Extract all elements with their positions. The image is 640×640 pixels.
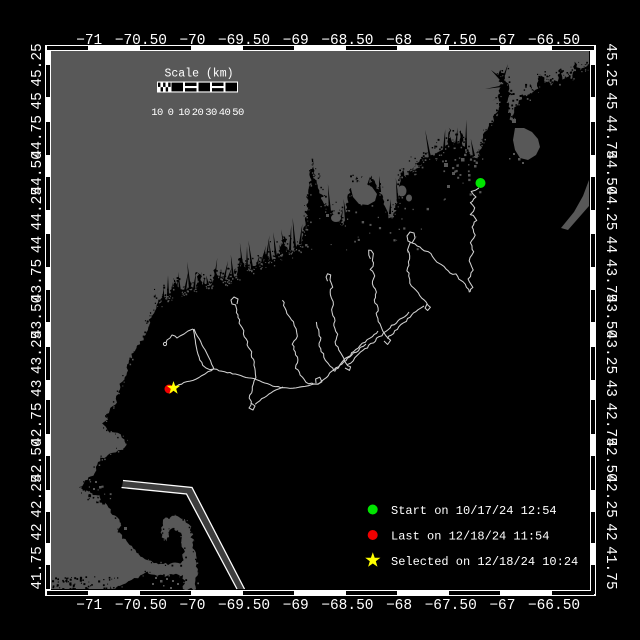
svg-text:41.75: 41.75	[602, 546, 618, 590]
svg-text:10: 10	[151, 107, 163, 119]
svg-text:44.25: 44.25	[602, 187, 618, 231]
svg-text:0: 0	[168, 107, 174, 119]
svg-text:Selected on 12/18/24 10:24: Selected on 12/18/24 10:24	[391, 555, 578, 569]
svg-text:−66.50: −66.50	[528, 598, 580, 614]
svg-text:42: 42	[602, 523, 618, 540]
svg-text:−67: −67	[489, 33, 515, 49]
svg-text:−67.50: −67.50	[425, 598, 477, 614]
svg-text:43: 43	[602, 380, 618, 397]
svg-text:44.25: 44.25	[30, 187, 46, 231]
svg-text:Scale (km): Scale (km)	[164, 68, 233, 81]
svg-text:−67.50: −67.50	[425, 33, 477, 49]
svg-text:Last on 12/18/24 11:54: Last on 12/18/24 11:54	[391, 530, 549, 544]
svg-text:−71: −71	[76, 598, 102, 614]
svg-text:−67: −67	[489, 598, 515, 614]
svg-text:45: 45	[602, 92, 618, 109]
svg-text:−70.50: −70.50	[115, 33, 167, 49]
svg-text:40: 40	[219, 107, 231, 119]
svg-text:−68: −68	[386, 33, 412, 49]
svg-text:−68.50: −68.50	[321, 33, 373, 49]
svg-text:Start on 10/17/24 12:54: Start on 10/17/24 12:54	[391, 504, 557, 518]
svg-text:45.25: 45.25	[602, 43, 618, 87]
svg-text:42.25: 42.25	[30, 474, 46, 518]
svg-text:−68: −68	[386, 598, 412, 614]
svg-text:43: 43	[30, 380, 46, 397]
svg-text:45: 45	[30, 92, 46, 109]
svg-text:−71: −71	[76, 33, 102, 49]
svg-text:−70: −70	[179, 33, 205, 49]
svg-text:50: 50	[232, 107, 244, 119]
svg-text:−68.50: −68.50	[321, 598, 373, 614]
svg-text:42: 42	[30, 523, 46, 540]
svg-text:43.25: 43.25	[602, 331, 618, 375]
svg-text:−66.50: −66.50	[528, 33, 580, 49]
svg-text:−69.50: −69.50	[218, 33, 270, 49]
svg-text:44: 44	[602, 236, 618, 253]
svg-text:44: 44	[30, 236, 46, 253]
svg-text:30: 30	[205, 107, 217, 119]
svg-text:10: 10	[178, 107, 190, 119]
svg-text:20: 20	[192, 107, 204, 119]
svg-text:−69: −69	[283, 33, 309, 49]
svg-text:42.25: 42.25	[602, 474, 618, 518]
svg-text:−69: −69	[283, 598, 309, 614]
svg-text:43.25: 43.25	[30, 331, 46, 375]
svg-text:−69.50: −69.50	[218, 598, 270, 614]
svg-text:−70.50: −70.50	[115, 598, 167, 614]
svg-text:41.75: 41.75	[30, 546, 46, 590]
svg-text:−70: −70	[179, 598, 205, 614]
svg-text:45.25: 45.25	[30, 43, 46, 87]
